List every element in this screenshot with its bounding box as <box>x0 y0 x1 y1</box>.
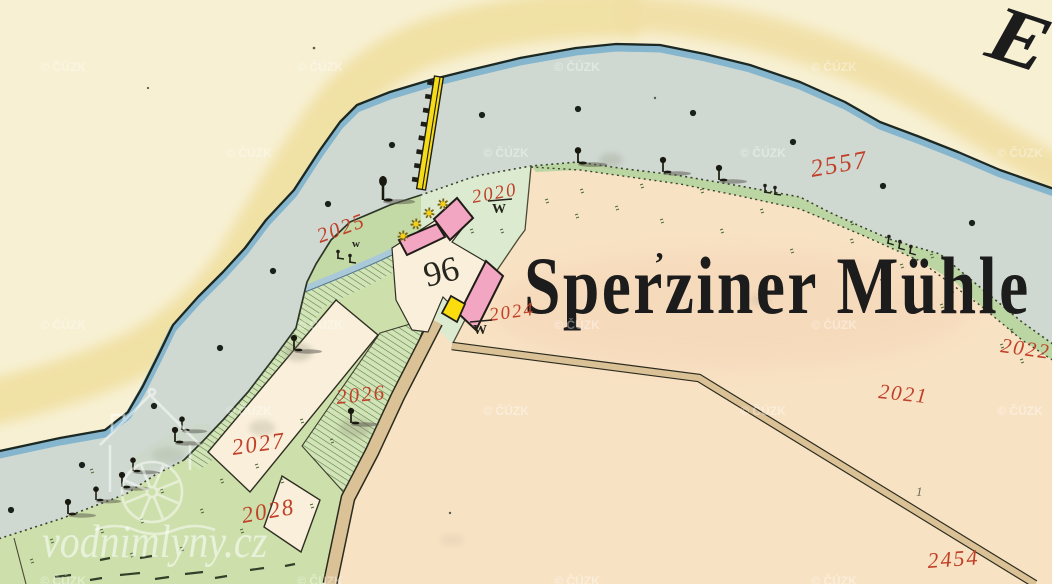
svg-text:© ČÚZK: © ČÚZK <box>554 59 600 74</box>
svg-text:© ČÚZK: © ČÚZK <box>554 317 600 332</box>
svg-text:© ČÚZK: © ČÚZK <box>483 145 529 160</box>
svg-text:W: W <box>492 202 506 217</box>
svg-text:© ČÚZK: © ČÚZK <box>997 403 1043 418</box>
svg-text:© ČÚZK: © ČÚZK <box>483 403 529 418</box>
svg-text:© ČÚZK: © ČÚZK <box>226 403 272 418</box>
svg-text:© ČÚZK: © ČÚZK <box>297 59 343 74</box>
svg-text:2454: 2454 <box>927 544 981 573</box>
svg-text:© ČÚZK: © ČÚZK <box>740 403 786 418</box>
svg-text:© ČÚZK: © ČÚZK <box>297 317 343 332</box>
svg-text:© ČÚZK: © ČÚZK <box>226 145 272 160</box>
svg-text:© ČÚZK: © ČÚZK <box>811 59 857 74</box>
svg-text:vodnimlyny.cz: vodnimlyny.cz <box>42 516 267 568</box>
svg-text:ʼ: ʼ <box>654 245 665 281</box>
svg-text:W: W <box>473 323 487 338</box>
svg-text:1: 1 <box>916 484 923 499</box>
svg-text:© ČÚZK: © ČÚZK <box>740 145 786 160</box>
svg-text:© ČÚZK: © ČÚZK <box>40 573 86 584</box>
svg-text:© ČÚZK: © ČÚZK <box>811 573 857 584</box>
svg-text:w: w <box>352 238 360 250</box>
svg-text:© ČÚZK: © ČÚZK <box>554 573 600 584</box>
svg-text:© ČÚZK: © ČÚZK <box>40 59 86 74</box>
svg-text:Sperziner Mühle: Sperziner Mühle <box>524 241 1031 332</box>
svg-text:© ČÚZK: © ČÚZK <box>40 317 86 332</box>
svg-text:© ČÚZK: © ČÚZK <box>297 573 343 584</box>
svg-text:© ČÚZK: © ČÚZK <box>811 317 857 332</box>
svg-text:© ČÚZK: © ČÚZK <box>997 145 1043 160</box>
